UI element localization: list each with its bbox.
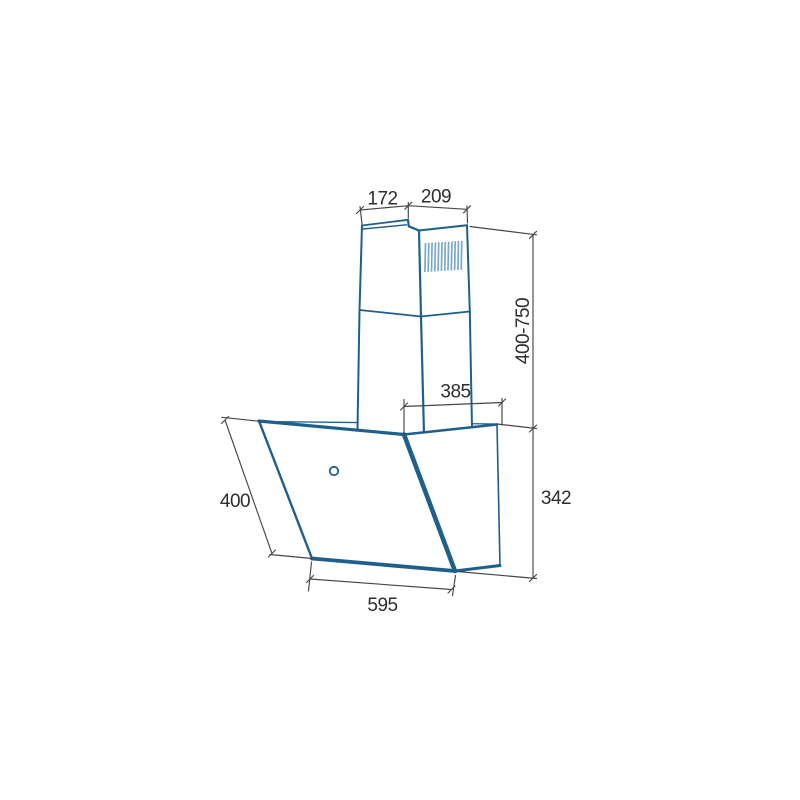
cooker-hood-dimension-drawing: 172 209 400-750 385 342 400 595 (0, 0, 800, 800)
dim-label-body-width: 595 (367, 595, 397, 616)
dim-label-glass-front-length: 400 (220, 491, 250, 512)
dim-label-body-side-height: 342 (541, 488, 571, 509)
dim-label-chimney-height-range: 400-750 (513, 298, 534, 364)
hood-body (259, 421, 500, 571)
dim-label-body-top-depth: 385 (440, 382, 470, 403)
touch-control-icon (330, 467, 338, 475)
dim-label-chimney-top-width: 209 (421, 187, 451, 208)
dimension-drawing-page: 172 209 400-750 385 342 400 595 (0, 0, 800, 800)
dim-label-chimney-top-depth: 172 (367, 189, 397, 210)
